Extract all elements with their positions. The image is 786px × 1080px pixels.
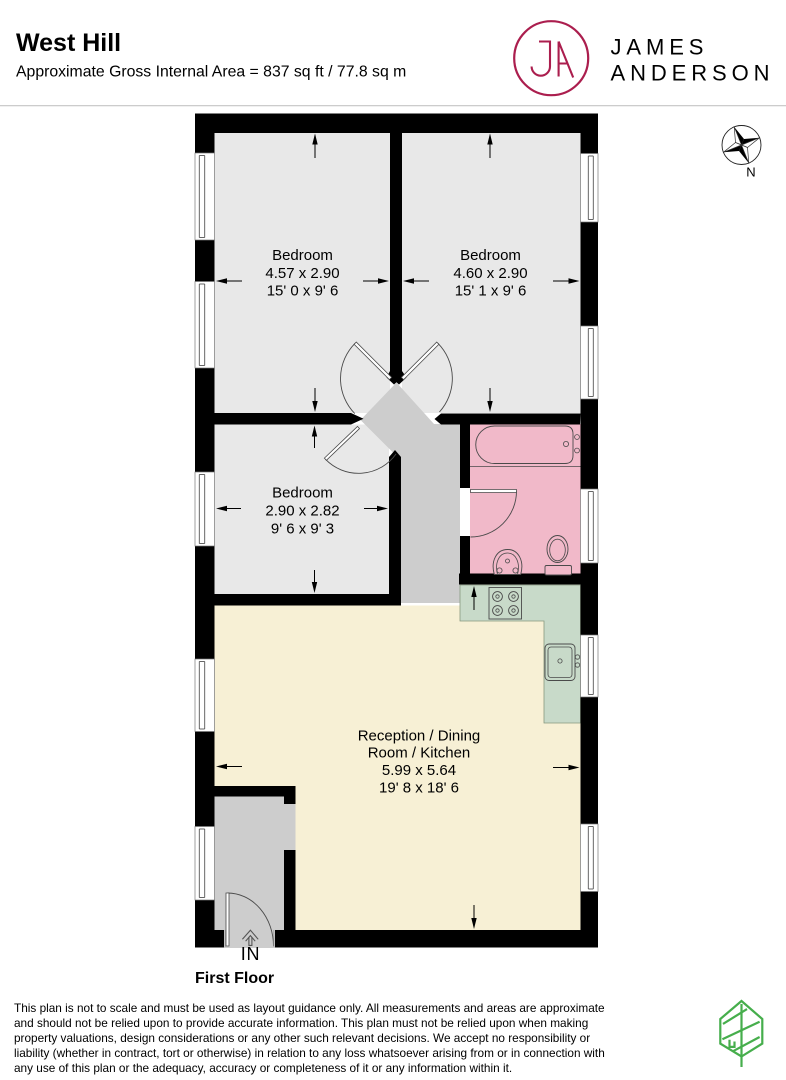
svg-text:and should not be relied upon: and should not be relied upon to provide… [14,1016,588,1030]
svg-text:IN: IN [241,944,261,964]
svg-text:Bedroom: Bedroom [272,485,333,502]
svg-text:JAMES: JAMES [611,35,709,60]
svg-text:2.90 x 2.82: 2.90 x 2.82 [265,503,339,520]
svg-text:property valuations, design co: property valuations, design consideratio… [14,1031,590,1045]
svg-text:9' 6 x 9' 3: 9' 6 x 9' 3 [271,521,334,538]
svg-text:N: N [746,165,755,180]
svg-text:5.99 x 5.64: 5.99 x 5.64 [382,762,456,779]
svg-text:This plan is not to scale and: This plan is not to scale and must be us… [14,1001,605,1015]
svg-text:4.57 x 2.90: 4.57 x 2.90 [265,265,339,282]
svg-text:4.60 x 2.90: 4.60 x 2.90 [453,265,527,282]
svg-text:Bedroom: Bedroom [460,247,521,264]
svg-text:15' 1 x 9' 6: 15' 1 x 9' 6 [455,283,527,300]
svg-text:Reception / Dining: Reception / Dining [358,728,481,745]
svg-text:Bedroom: Bedroom [272,247,333,264]
svg-text:any use of this plan or the ad: any use of this plan or the adequacy, ac… [14,1061,512,1075]
svg-text:15' 0 x 9' 6: 15' 0 x 9' 6 [267,283,339,300]
svg-text:Approximate Gross Internal Are: Approximate Gross Internal Area = 837 sq… [16,64,406,81]
svg-text:ANDERSON: ANDERSON [611,61,775,86]
svg-text:West Hill: West Hill [16,29,121,57]
svg-text:First Floor: First Floor [195,970,274,987]
svg-text:Room / Kitchen: Room / Kitchen [368,745,471,762]
svg-text:19' 8 x 18' 6: 19' 8 x 18' 6 [379,779,459,796]
svg-text:liability (whether in contract: liability (whether in contract, tort or … [14,1046,605,1060]
